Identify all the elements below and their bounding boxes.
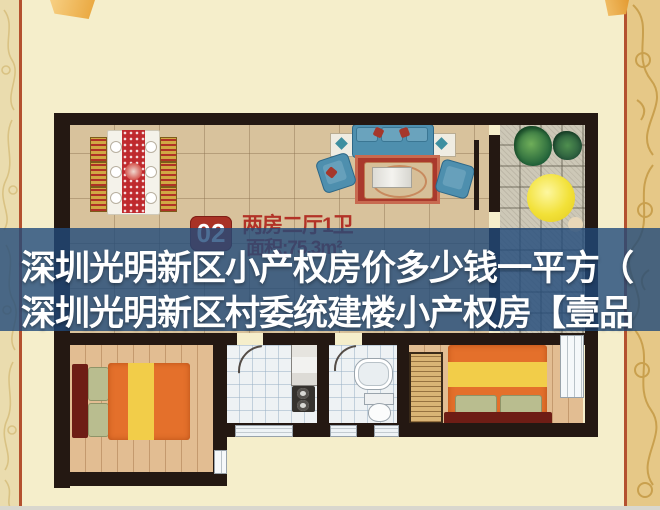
bedroom-window bbox=[560, 335, 584, 398]
dining-chair bbox=[90, 137, 107, 162]
bed-runner-stripe bbox=[128, 363, 154, 440]
bed-headboard bbox=[72, 364, 88, 438]
plate bbox=[145, 141, 157, 153]
stove-burner bbox=[297, 400, 309, 411]
bottom-edge-strip bbox=[0, 506, 660, 510]
caption-line-1: 深圳光明新区小产权房价多少钱一平方（ bbox=[21, 240, 633, 291]
wall-balcony-upper bbox=[489, 135, 500, 212]
bedroom-left-window bbox=[214, 450, 227, 474]
kitchen-cabinet bbox=[291, 343, 318, 386]
round-lantern bbox=[527, 174, 575, 222]
dining-chair bbox=[160, 162, 177, 187]
wall-bath-bedroom bbox=[397, 345, 409, 423]
dining-chair bbox=[160, 187, 177, 212]
coffee-table bbox=[372, 167, 412, 188]
plate bbox=[110, 166, 122, 178]
potted-plant-icon bbox=[553, 131, 582, 160]
plate bbox=[110, 141, 122, 153]
corner-ribbon-left bbox=[50, 0, 95, 19]
balcony-slider-rail bbox=[474, 140, 479, 210]
bed-runner-stripe bbox=[448, 362, 547, 387]
plate bbox=[110, 192, 122, 204]
bed-pillow bbox=[88, 367, 109, 401]
dining-chair bbox=[90, 187, 107, 212]
potted-plant-icon bbox=[514, 126, 552, 166]
dining-chair bbox=[160, 137, 177, 162]
runner-medallion bbox=[125, 163, 142, 180]
armchair-seat bbox=[442, 165, 467, 190]
plate bbox=[145, 192, 157, 204]
plate bbox=[145, 166, 157, 178]
bathroom-window bbox=[330, 425, 357, 437]
wall-top bbox=[54, 113, 598, 125]
wall-bedroom-left-bottom bbox=[54, 472, 227, 486]
page: 02 两房二厅1卫 面积:75.3m² 深圳光明新区小产权房价多少钱一平方（ 深… bbox=[0, 0, 660, 510]
wardrobe bbox=[409, 352, 443, 424]
kitchen-window bbox=[235, 425, 293, 437]
caption-line-2: 深圳光明新区村委统建楼小产权房【壹品 bbox=[21, 285, 633, 336]
small-window bbox=[374, 425, 399, 437]
stove-burner bbox=[297, 388, 309, 399]
toilet-bowl bbox=[368, 403, 391, 422]
dining-chair bbox=[90, 162, 107, 187]
wall-kitchen-bath bbox=[317, 345, 329, 423]
corner-ribbon-right bbox=[605, 0, 629, 16]
bed-pillow bbox=[88, 403, 109, 437]
